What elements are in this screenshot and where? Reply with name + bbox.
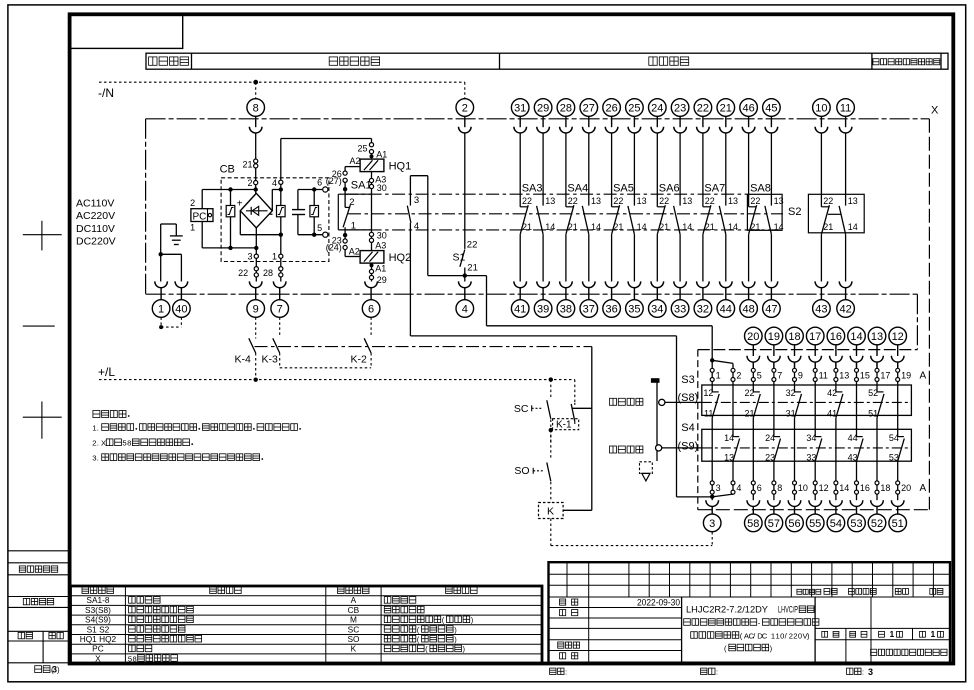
svg-text:35: 35 <box>628 303 640 315</box>
svg-text:8: 8 <box>127 439 131 448</box>
svg-text:24: 24 <box>651 102 663 114</box>
svg-text:21: 21 <box>467 263 478 274</box>
svg-text:SA6: SA6 <box>659 182 680 194</box>
svg-text:28: 28 <box>263 268 273 278</box>
svg-text:HQ2: HQ2 <box>389 252 412 264</box>
svg-text:8: 8 <box>133 654 137 663</box>
svg-text:54: 54 <box>889 433 899 443</box>
svg-text:22: 22 <box>750 196 760 206</box>
svg-text:41: 41 <box>514 303 526 315</box>
svg-text:51: 51 <box>892 518 904 530</box>
svg-text:54: 54 <box>830 518 842 530</box>
svg-text:SO: SO <box>514 465 529 477</box>
svg-text:14: 14 <box>591 222 601 232</box>
svg-text:52: 52 <box>868 388 878 398</box>
svg-text:X: X <box>101 439 106 448</box>
svg-text:S1 S2: S1 S2 <box>87 624 110 634</box>
svg-text:16: 16 <box>860 483 870 493</box>
svg-text:47: 47 <box>765 303 777 315</box>
svg-text:33: 33 <box>806 453 816 463</box>
svg-text:M: M <box>350 615 357 625</box>
svg-text:4: 4 <box>414 221 419 232</box>
svg-text:11: 11 <box>704 408 713 418</box>
svg-text:LHJC2R2-7.2/12DY: LHJC2R2-7.2/12DY <box>686 605 769 616</box>
svg-text:1: 1 <box>272 252 277 262</box>
svg-text:13: 13 <box>545 196 555 206</box>
svg-text:2: 2 <box>349 197 354 208</box>
svg-text:DC110V: DC110V <box>76 223 115 235</box>
svg-text:AC110V: AC110V <box>76 198 114 210</box>
svg-text:28: 28 <box>560 102 572 114</box>
svg-text:11: 11 <box>819 371 828 381</box>
svg-text:SO: SO <box>347 634 360 644</box>
svg-text:5: 5 <box>128 654 132 663</box>
svg-text:1: 1 <box>158 303 164 315</box>
svg-text:2: 2 <box>247 178 252 188</box>
svg-text:32: 32 <box>697 303 709 315</box>
svg-text:21: 21 <box>823 222 833 232</box>
svg-text:S1: S1 <box>453 252 466 264</box>
svg-text:22: 22 <box>568 196 578 206</box>
svg-text:K-3: K-3 <box>262 354 279 366</box>
svg-text:CB: CB <box>220 164 235 176</box>
svg-text:A: A <box>351 595 357 605</box>
svg-text:SA8: SA8 <box>750 182 771 194</box>
svg-text:34: 34 <box>806 433 816 443</box>
svg-text:13: 13 <box>724 453 734 463</box>
svg-text:20: 20 <box>901 483 911 493</box>
svg-text:2: 2 <box>736 371 741 381</box>
svg-text:21: 21 <box>659 222 669 232</box>
svg-text:53: 53 <box>850 518 862 530</box>
svg-text:S3: S3 <box>681 374 694 386</box>
svg-text:): ) <box>57 666 60 675</box>
svg-text:25: 25 <box>357 144 367 154</box>
svg-text:30: 30 <box>377 183 387 193</box>
svg-text:13: 13 <box>728 196 738 206</box>
svg-text:13: 13 <box>839 371 849 381</box>
svg-text:21: 21 <box>522 222 532 232</box>
svg-text:CB: CB <box>348 605 360 615</box>
svg-text:14: 14 <box>848 222 858 232</box>
svg-text:13: 13 <box>682 196 692 206</box>
svg-text:37: 37 <box>583 303 595 315</box>
svg-text:19: 19 <box>901 371 911 381</box>
svg-text:15: 15 <box>860 371 870 381</box>
svg-text:SA4: SA4 <box>567 182 588 194</box>
svg-text:3: 3 <box>414 195 419 206</box>
svg-text:22: 22 <box>823 196 833 206</box>
svg-text:SC: SC <box>514 403 529 415</box>
svg-text:1: 1 <box>716 371 721 381</box>
svg-text:SA7: SA7 <box>704 182 725 194</box>
svg-text:S4(S9): S4(S9) <box>85 615 111 625</box>
svg-text:6: 6 <box>757 483 762 493</box>
svg-text:21: 21 <box>720 102 732 114</box>
svg-text:27: 27 <box>583 102 595 114</box>
svg-text:3: 3 <box>709 518 715 530</box>
svg-text:7: 7 <box>777 371 782 381</box>
svg-text:14: 14 <box>728 222 738 232</box>
svg-text:10: 10 <box>798 483 808 493</box>
svg-text:X: X <box>931 105 939 117</box>
svg-text:(27): (27) <box>326 176 342 186</box>
svg-text:26: 26 <box>605 102 617 114</box>
svg-text:43: 43 <box>848 453 858 463</box>
svg-text:AC220V: AC220V <box>76 210 115 222</box>
svg-text:22: 22 <box>238 268 248 278</box>
svg-text:X: X <box>95 653 101 663</box>
svg-text:K-1: K-1 <box>556 420 572 431</box>
svg-text:DC220V: DC220V <box>76 236 116 248</box>
svg-text:18: 18 <box>788 331 800 343</box>
svg-text:A1: A1 <box>375 264 386 274</box>
svg-text:13: 13 <box>871 331 883 343</box>
svg-text:44: 44 <box>720 303 732 315</box>
svg-text:HQ1 HQ2: HQ1 HQ2 <box>80 634 117 644</box>
svg-text:11: 11 <box>840 102 851 114</box>
svg-text:13: 13 <box>637 196 647 206</box>
svg-text:9: 9 <box>253 303 259 315</box>
svg-text:1: 1 <box>890 629 895 639</box>
svg-text:+: + <box>237 198 243 209</box>
svg-text::: : <box>862 668 864 677</box>
svg-text:21: 21 <box>744 408 754 418</box>
svg-text:K-4: K-4 <box>234 354 251 366</box>
svg-text:22: 22 <box>705 196 715 206</box>
svg-text:A3: A3 <box>375 240 386 250</box>
svg-text:43: 43 <box>815 303 827 315</box>
svg-text:9: 9 <box>798 371 803 381</box>
svg-text:42: 42 <box>839 303 851 315</box>
svg-text:4: 4 <box>272 178 277 188</box>
svg-text:5: 5 <box>757 371 762 381</box>
svg-text:S2: S2 <box>788 206 801 218</box>
svg-text:18: 18 <box>880 483 890 493</box>
svg-text:PC: PC <box>193 211 207 222</box>
svg-text:4: 4 <box>462 303 468 315</box>
svg-text:31: 31 <box>514 102 526 114</box>
svg-text:SA1-8: SA1-8 <box>86 595 109 605</box>
svg-text:.: . <box>97 454 99 463</box>
svg-text:0: 0 <box>798 631 802 640</box>
svg-text:2: 2 <box>793 631 797 640</box>
svg-text:14: 14 <box>839 483 849 493</box>
svg-text:14: 14 <box>545 222 555 232</box>
svg-text:45: 45 <box>765 102 777 114</box>
svg-text:17: 17 <box>809 331 821 343</box>
svg-text:39: 39 <box>537 303 549 315</box>
svg-text:14: 14 <box>850 331 862 343</box>
svg-text:1: 1 <box>776 631 780 640</box>
svg-text:LHVC/P: LHVC/P <box>778 605 798 616</box>
svg-text:51: 51 <box>868 408 878 418</box>
svg-text:16: 16 <box>830 331 842 343</box>
svg-text:+/L: +/L <box>98 365 115 379</box>
svg-text:.: . <box>97 423 99 432</box>
svg-text:22: 22 <box>659 196 669 206</box>
svg-text:23: 23 <box>674 102 686 114</box>
svg-text:A1: A1 <box>376 150 387 160</box>
svg-text:20: 20 <box>747 331 759 343</box>
svg-text:C: C <box>762 631 768 640</box>
svg-text:SA5: SA5 <box>613 182 634 194</box>
svg-text:24: 24 <box>765 433 775 443</box>
svg-text:(24): (24) <box>326 243 342 253</box>
svg-text:3: 3 <box>247 252 252 262</box>
svg-text:7: 7 <box>277 303 283 315</box>
svg-text:K: K <box>351 644 357 654</box>
svg-text:58: 58 <box>747 518 759 530</box>
svg-text:5: 5 <box>317 223 322 233</box>
svg-text:53: 53 <box>889 453 899 463</box>
svg-text:23: 23 <box>765 453 775 463</box>
svg-text:K-2: K-2 <box>350 354 367 366</box>
svg-text:12: 12 <box>819 483 829 493</box>
svg-text:21: 21 <box>568 222 578 232</box>
svg-text:5: 5 <box>122 439 126 448</box>
svg-text::: : <box>565 668 567 677</box>
svg-text:14: 14 <box>637 222 647 232</box>
svg-text:SC: SC <box>348 624 360 634</box>
svg-text:14: 14 <box>724 433 734 443</box>
svg-text:21: 21 <box>705 222 715 232</box>
svg-text:HQ1: HQ1 <box>389 161 412 173</box>
svg-text:12: 12 <box>703 388 713 398</box>
svg-text:55: 55 <box>809 518 821 530</box>
svg-text:PC: PC <box>92 644 104 654</box>
svg-text:44: 44 <box>848 433 858 443</box>
svg-text:2022-09-30: 2022-09-30 <box>637 597 680 608</box>
svg-text:12: 12 <box>892 331 904 343</box>
svg-text:22: 22 <box>697 102 709 114</box>
svg-text:56: 56 <box>788 518 800 530</box>
svg-text:1: 1 <box>771 631 775 640</box>
svg-text:22: 22 <box>744 388 754 398</box>
svg-text:42: 42 <box>827 388 837 398</box>
svg-text:A: A <box>920 483 927 494</box>
svg-text:13: 13 <box>848 196 858 206</box>
svg-text:19: 19 <box>768 331 780 343</box>
svg-text:-/N: -/N <box>98 86 114 100</box>
svg-text:17: 17 <box>880 371 890 381</box>
svg-text:A2: A2 <box>349 247 360 257</box>
svg-text:14: 14 <box>682 222 692 232</box>
svg-text:38: 38 <box>560 303 572 315</box>
svg-text:21: 21 <box>242 159 252 169</box>
svg-text:48: 48 <box>742 303 754 315</box>
svg-text:6: 6 <box>317 178 322 188</box>
svg-text:10: 10 <box>815 102 827 114</box>
svg-text:3: 3 <box>716 483 721 493</box>
svg-text:1: 1 <box>931 629 936 639</box>
svg-text:57: 57 <box>768 518 780 530</box>
svg-text:40: 40 <box>175 303 187 315</box>
svg-text:SA3: SA3 <box>522 182 543 194</box>
svg-text:13: 13 <box>591 196 601 206</box>
svg-text:52: 52 <box>871 518 883 530</box>
svg-text:33: 33 <box>674 303 686 315</box>
svg-text:34: 34 <box>651 303 663 315</box>
svg-text:8: 8 <box>253 102 259 114</box>
svg-text:21: 21 <box>613 222 623 232</box>
svg-text:A2: A2 <box>350 156 361 166</box>
svg-text:46: 46 <box>742 102 754 114</box>
svg-text:A: A <box>920 371 927 382</box>
svg-text:22: 22 <box>613 196 623 206</box>
svg-text:S3(S8): S3(S8) <box>85 605 111 615</box>
svg-text:32: 32 <box>786 388 796 398</box>
svg-text:.: . <box>97 439 99 448</box>
svg-text:S4: S4 <box>681 422 694 434</box>
svg-text:SA1: SA1 <box>351 179 372 191</box>
svg-text:3: 3 <box>868 667 873 677</box>
svg-text:2: 2 <box>462 102 468 114</box>
svg-text:30: 30 <box>377 230 387 240</box>
svg-text:25: 25 <box>628 102 640 114</box>
svg-text:2: 2 <box>190 198 195 208</box>
svg-text:1: 1 <box>190 223 195 233</box>
svg-text:8: 8 <box>777 483 782 493</box>
svg-text:36: 36 <box>605 303 617 315</box>
svg-text:6: 6 <box>368 303 374 315</box>
svg-text:(S9): (S9) <box>678 440 699 452</box>
svg-text:31: 31 <box>786 408 796 418</box>
svg-text:22: 22 <box>522 196 532 206</box>
svg-text:29: 29 <box>377 275 387 285</box>
svg-text:K: K <box>547 506 554 518</box>
svg-text:22: 22 <box>467 240 478 251</box>
svg-text:29: 29 <box>537 102 549 114</box>
svg-text:4: 4 <box>736 483 741 493</box>
svg-text::: : <box>716 668 718 677</box>
svg-text:41: 41 <box>827 408 837 418</box>
svg-text:(S8): (S8) <box>678 392 699 404</box>
